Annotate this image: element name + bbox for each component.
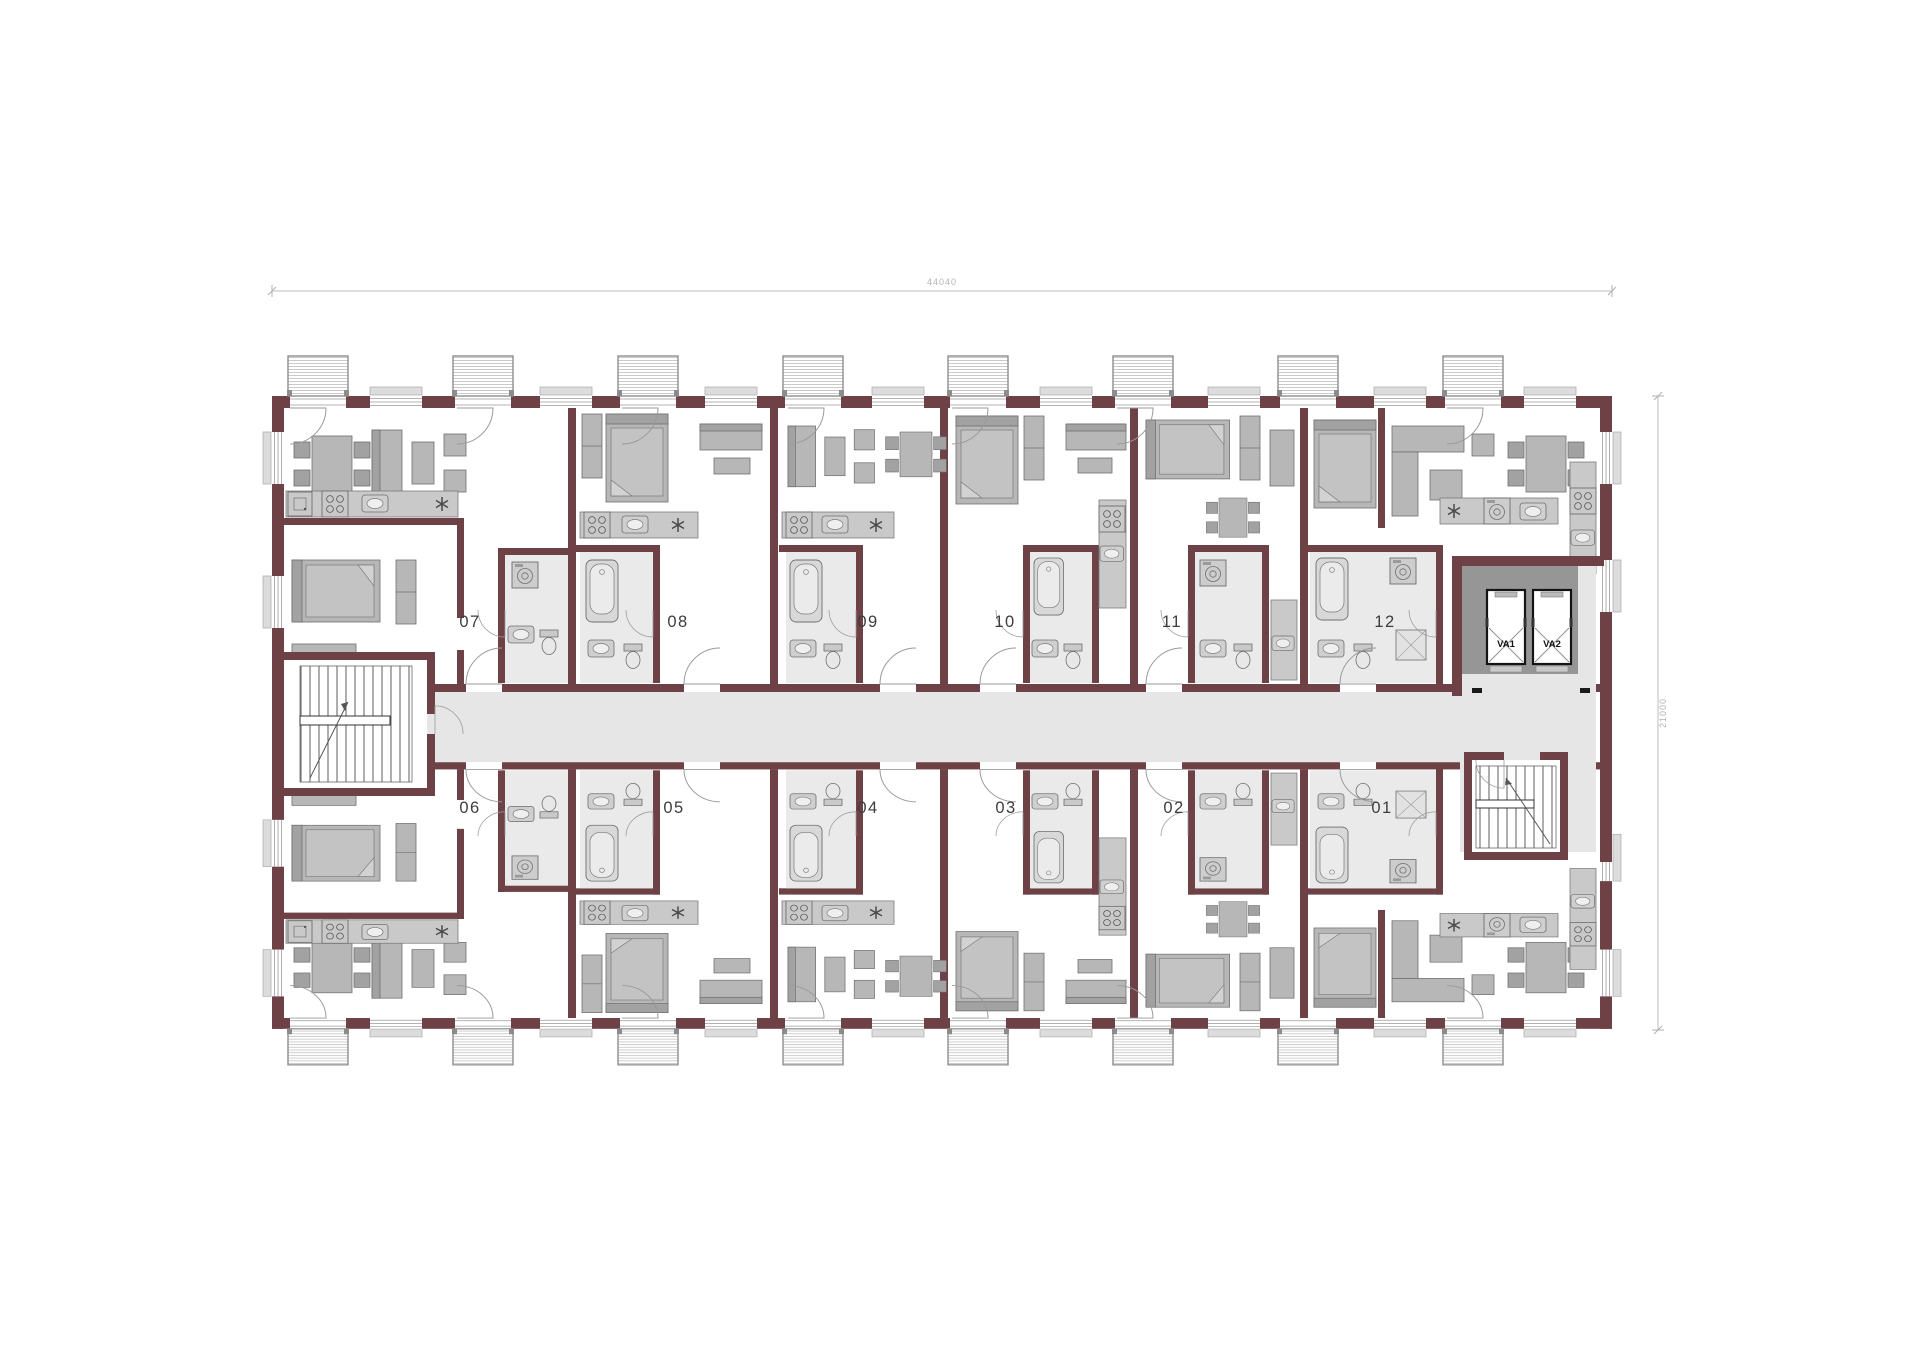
unit-03-region (950, 764, 1130, 1018)
unit-05-region (578, 764, 770, 1018)
unit-09-region (780, 408, 940, 684)
unit-08-region (578, 408, 770, 684)
dimension-top: 44040 (268, 277, 1616, 297)
unit-06-region (284, 764, 568, 1018)
dimension-top-value: 44040 (927, 277, 957, 287)
floor-plan-drawing: 44040 21000 (0, 0, 1920, 1357)
unit-02-region (1140, 764, 1300, 1018)
dimension-right: 21000 (1652, 392, 1668, 1034)
unit-11-region (1140, 408, 1300, 684)
floor-plan-page: 44040 21000 (0, 0, 1920, 1357)
unit-10-region (950, 408, 1130, 684)
unit-01-region (1310, 764, 1600, 1018)
unit-07-region (284, 408, 568, 684)
dimension-right-value: 21000 (1658, 698, 1668, 728)
unit-12-region (1310, 408, 1600, 684)
unit-04-region (780, 764, 940, 1018)
